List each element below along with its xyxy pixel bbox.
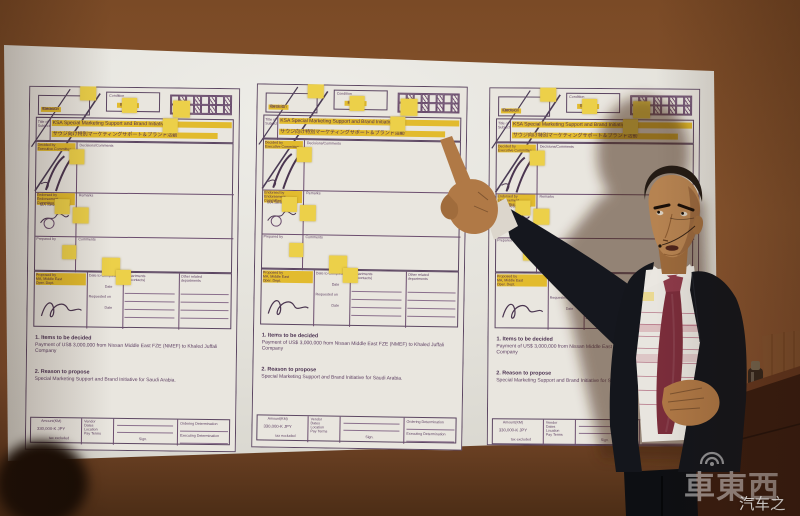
date-label: Date [331,304,339,308]
remarks-label: Remarks [306,191,320,195]
write-in-line [180,431,228,432]
amount-label: Amount(KM) [268,417,288,421]
write-in-line [125,301,175,302]
grid-line [307,416,308,442]
amount-determination-bar: Amount(KM) 330,000-K JPY tax excluded Ve… [256,414,456,443]
mouth [666,245,679,251]
executing-label: Executing Determination [180,434,219,439]
proposed-by-label: Proposed by MA, Middle East Oper. Dept. [36,273,86,286]
write-in-line [180,318,228,319]
prepared-by-label: Prepared by [36,237,56,241]
proposed-by-label: Proposed by MA, Middle East Oper. Dept. [263,270,313,283]
items-heading: 1. Items to be decided [35,335,91,342]
decision-document: Decision Form: C Condition Expense Title… [25,86,240,453]
sticky-note [282,197,297,212]
write-in-line [180,310,228,311]
form-type-label: Form: C [269,105,284,110]
decisions-comments-label: Decisions/Comments [307,141,341,146]
sticky-note [122,98,137,113]
sign-label: Sign. [139,437,147,441]
write-in-line [343,430,399,432]
other-departments-label: Other related departments [181,275,202,284]
items-body: Payment of US$ 3,000,000 from Nissan Mid… [262,339,454,354]
write-in-line [117,432,173,433]
subject-title-japanese: サウジ向け特別マーケティングサポート＆ブランド活動 [52,131,218,139]
sticky-note [300,205,316,221]
sticky-note [163,118,178,133]
sticky-note [349,96,364,111]
sticky-note [116,270,131,285]
document-panel-left: Decision Form: C Condition Expense Title… [25,86,240,453]
form-type-label: Form: C [42,107,57,112]
sticky-note [55,199,70,214]
write-in-line [180,443,228,444]
vendor-labels: Vendor Dates Location Pay Terms [310,417,327,434]
title-of-subject-label: Title of Subject [38,120,49,128]
grid-line [50,118,51,142]
grid-line [86,272,88,328]
decisions-comments-label: Decisions/Comments [79,143,113,148]
amount-note: tax excluded [275,434,295,438]
sticky-note [69,149,84,164]
reason-heading: 2. Reason to propose [35,369,90,376]
sticky-note [173,100,190,117]
title-of-subject-label: Title of Subject [265,118,276,126]
write-in-line [124,317,174,318]
presenter-figure [430,96,800,516]
other-departments-label: Other related departments [408,273,429,282]
write-in-line [125,309,175,310]
sticky-note [308,83,324,98]
sticky-note [62,245,76,259]
date-label: Date [105,285,113,289]
subject-title-japanese: サウジ向け特別マーケティングサポート＆ブランド活動 [279,129,445,138]
sticky-note [289,243,303,257]
grid-line [35,236,233,239]
title-block: Title of Subject KSA Special Marketing S… [36,117,234,143]
audience-head-silhouette [0,418,112,516]
sticky-note [343,268,358,283]
grid-line [313,270,315,326]
approval-stamp-icon [43,218,54,229]
requested-on-label: Requested on [89,294,121,299]
write-in-line [125,293,175,294]
grid-line [177,420,178,446]
write-in-line [351,299,401,301]
sticky-note [297,147,312,162]
write-in-line [351,307,401,309]
comments-label: Comments [305,235,322,239]
press-conference-photo: Decision Form: C Condition Expense Title… [0,0,800,516]
comments-label: Comments [78,237,95,241]
pointing-hand [440,136,498,234]
sticky-note [80,86,96,101]
grid-line [113,419,114,445]
sticky-note [390,116,405,131]
proposer-signature [37,294,85,325]
items-body: Payment of US$ 3,000,000 from Nissan Mid… [35,342,227,356]
reason-body: Special Marketing Support and Brand Init… [35,376,227,384]
grid-line [403,418,404,444]
write-in-line [352,291,402,293]
grid-line [277,116,278,140]
remarks-label: Remarks [79,193,93,197]
sticky-note [400,99,417,116]
date-label: Date [104,306,112,310]
sign-label: Sign. [365,435,373,439]
prepared-by-label: Prepared by [263,234,283,238]
write-in-line [181,294,229,295]
write-in-line [181,302,229,303]
ordering-label: Ordering Determination [180,422,217,427]
watermark-autohome-logo: 汽车之家 [739,492,800,516]
amount-value: 330,000-K JPY [263,425,291,430]
sticky-note [73,207,89,223]
subject-title-english: KSA Special Marketing Support and Brand … [52,120,232,128]
proposed-by-block: Proposed by MA, Middle East Oper. Dept. … [33,271,232,329]
requested-on-label: Requested on [316,292,348,297]
grid-line [339,417,340,443]
reason-body: Special Marketing Support and Brand Init… [261,373,453,382]
proposer-signature [264,292,312,323]
write-in-line [351,315,401,317]
write-in-line [344,423,400,425]
date-label: Date [332,283,340,287]
write-in-line [117,425,173,426]
